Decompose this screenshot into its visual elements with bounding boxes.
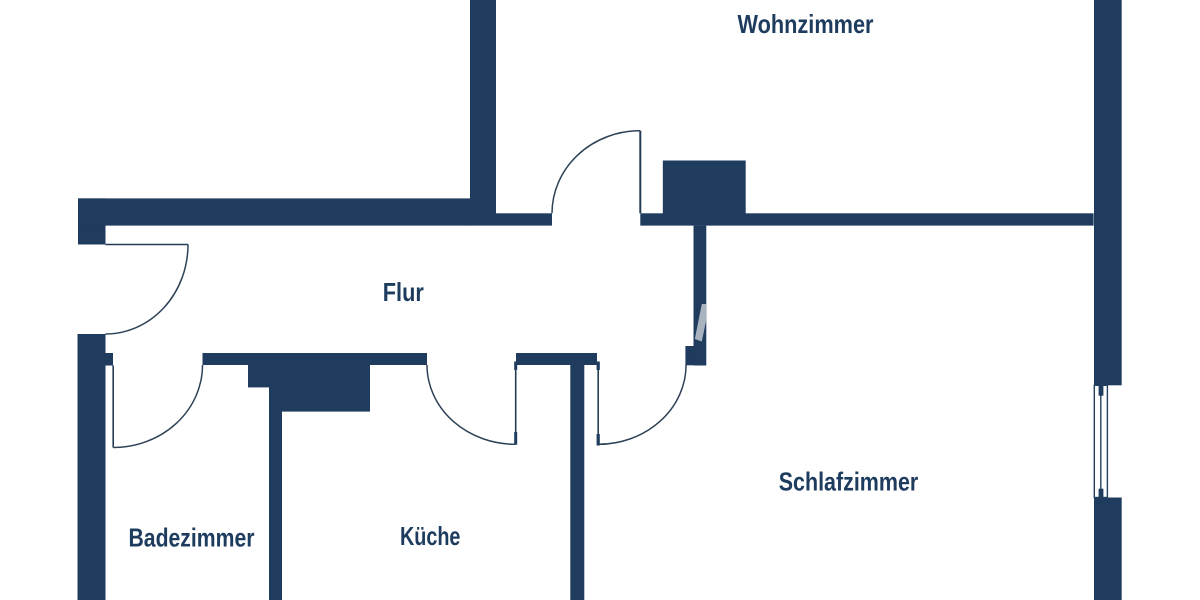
svg-text:Flur: Flur [383,277,424,307]
svg-text:Wohnzimmer: Wohnzimmer [738,9,874,39]
svg-text:Badezimmer: Badezimmer [129,523,255,553]
svg-text:Schlafzimmer: Schlafzimmer [779,467,919,497]
svg-text:Küche: Küche [400,521,461,551]
